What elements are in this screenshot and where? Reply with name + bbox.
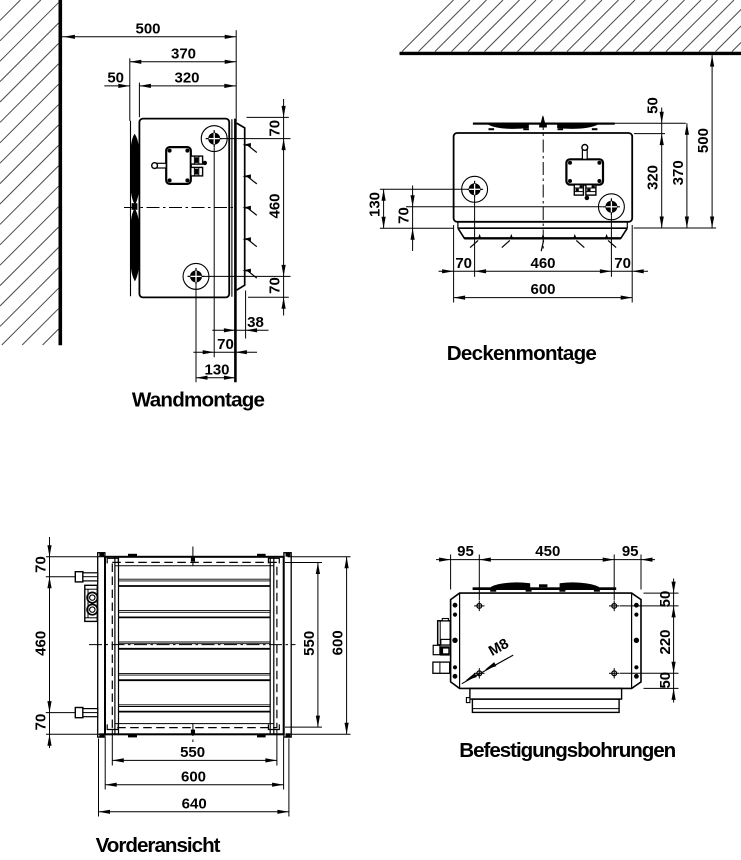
svg-text:70: 70 <box>33 714 50 731</box>
svg-text:Befestigungsbohrungen: Befestigungsbohrungen <box>459 739 675 762</box>
svg-text:Wandmontage: Wandmontage <box>132 389 265 412</box>
svg-text:70: 70 <box>267 120 284 137</box>
svg-text:460: 460 <box>267 193 284 218</box>
svg-text:50: 50 <box>645 97 662 114</box>
svg-text:550: 550 <box>180 744 205 761</box>
svg-text:50: 50 <box>657 672 674 689</box>
svg-text:Vorderansicht: Vorderansicht <box>96 834 221 857</box>
svg-text:130: 130 <box>366 192 383 217</box>
svg-text:50: 50 <box>657 591 674 608</box>
svg-text:70: 70 <box>455 255 472 272</box>
svg-text:500: 500 <box>695 128 712 153</box>
svg-text:600: 600 <box>530 281 555 298</box>
svg-text:450: 450 <box>535 543 560 560</box>
svg-text:38: 38 <box>247 314 264 331</box>
svg-text:70: 70 <box>267 277 284 294</box>
svg-text:320: 320 <box>174 70 199 87</box>
svg-text:460: 460 <box>530 255 555 272</box>
svg-text:70: 70 <box>396 207 413 224</box>
svg-text:370: 370 <box>171 45 196 62</box>
svg-text:95: 95 <box>457 543 474 560</box>
svg-text:600: 600 <box>181 768 206 785</box>
svg-text:70: 70 <box>614 255 631 272</box>
svg-text:370: 370 <box>670 160 687 185</box>
svg-text:220: 220 <box>657 629 674 654</box>
svg-text:130: 130 <box>204 361 229 378</box>
svg-text:500: 500 <box>135 20 160 37</box>
svg-text:550: 550 <box>301 631 318 656</box>
svg-text:460: 460 <box>33 631 50 656</box>
svg-text:Deckenmontage: Deckenmontage <box>447 342 597 365</box>
svg-text:95: 95 <box>622 543 639 560</box>
svg-text:600: 600 <box>330 630 347 655</box>
svg-text:50: 50 <box>107 70 124 87</box>
svg-text:70: 70 <box>33 556 50 573</box>
svg-text:640: 640 <box>182 795 207 812</box>
svg-text:70: 70 <box>217 336 234 353</box>
svg-text:320: 320 <box>645 165 662 190</box>
